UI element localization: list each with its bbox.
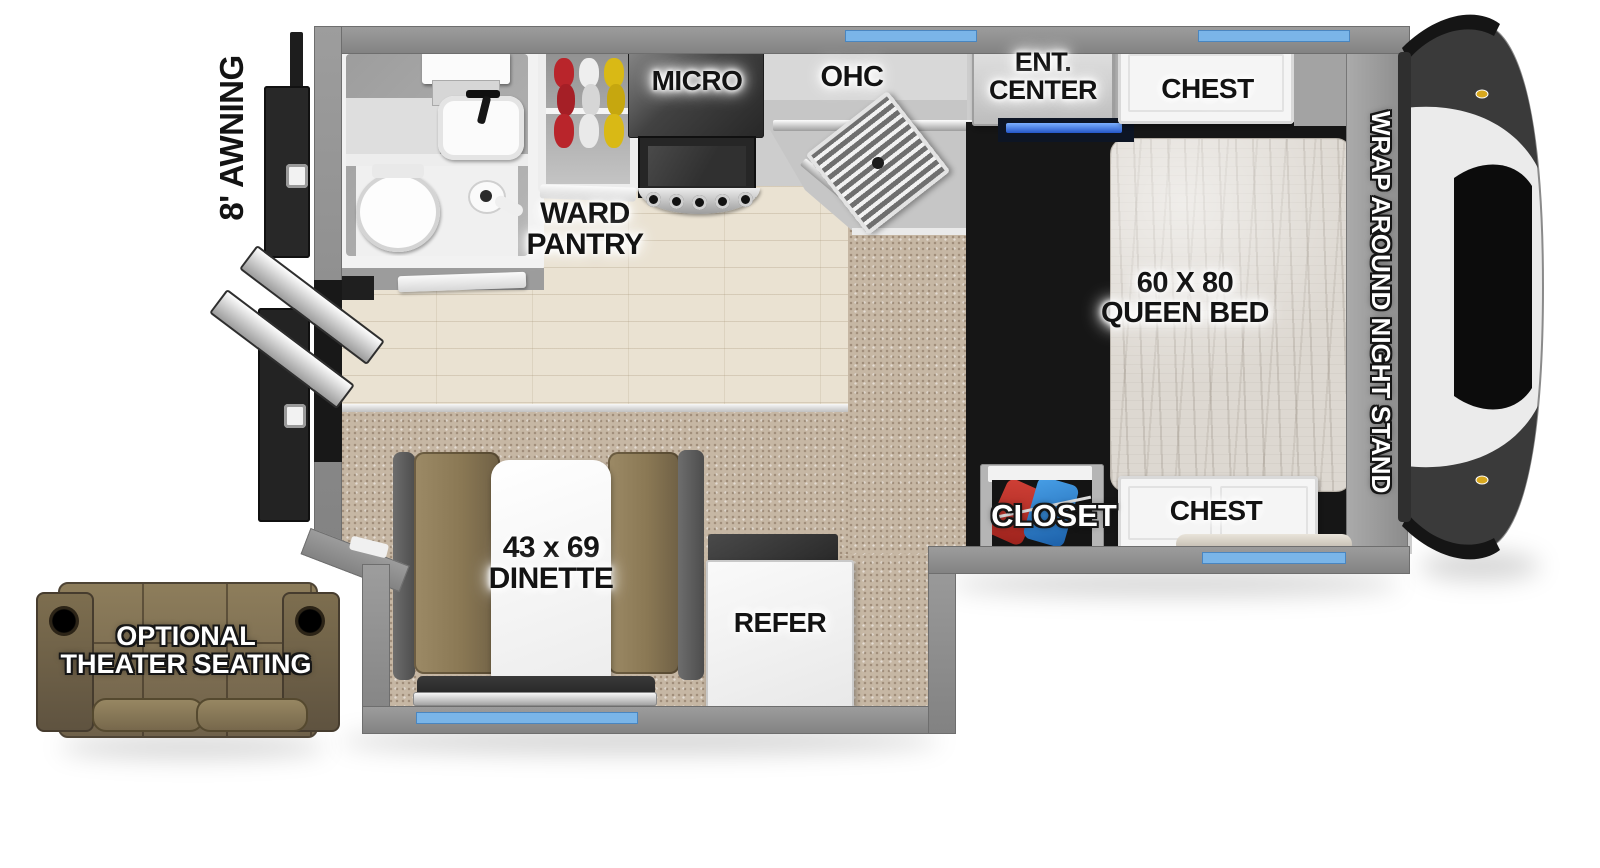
marker-light-icon [1476, 476, 1488, 484]
sink-drain-icon [870, 155, 887, 172]
shadow [950, 572, 1400, 596]
night-stand-label: WRAP AROUND NIGHT STAND [1362, 62, 1394, 542]
ward-pantry [538, 38, 638, 192]
chest-top-label: CHEST [1130, 74, 1285, 103]
faucet-spout-icon [477, 95, 492, 124]
dinette-label: 43 x 69 DINETTE [452, 532, 650, 594]
dinette-armrest-right [678, 450, 704, 680]
theater-seating-label: OPTIONAL THEATER SEATING [38, 622, 334, 679]
burner-icon [738, 192, 753, 207]
toilet [356, 172, 440, 252]
ward-pantry-label: WARD PANTRY [493, 198, 677, 260]
burner-icon [692, 195, 707, 210]
hanger-red-icon [554, 58, 574, 162]
window-bottom-bedroom [1202, 552, 1346, 564]
front-cap [1396, 6, 1548, 568]
awning-label: 8' AWNING [215, 13, 259, 263]
night-stand-return [1294, 48, 1348, 126]
floorplan-canvas: 8' AWNING MICRO OHC ENT. CENTER CHEST WA… [0, 0, 1600, 868]
ohc-label: OHC [792, 62, 912, 92]
toilet-tank [372, 164, 424, 178]
vanity-ledge [346, 98, 440, 156]
refer-label: REFER [706, 608, 854, 637]
dinette-step-edge [413, 692, 657, 706]
ward-pantry-interior [546, 46, 630, 184]
queen-bed-label: 60 X 80 QUEEN BED [1083, 268, 1287, 328]
carpet-bed-step [848, 222, 968, 558]
shower-head-hole [480, 190, 492, 202]
marker-light-icon [1476, 90, 1488, 98]
window-top-galley [845, 30, 977, 42]
ent-center-label: ENT. CENTER [968, 48, 1118, 104]
led-strip [1006, 123, 1122, 133]
window-top-bedroom [1198, 30, 1350, 42]
wall-bump-right [928, 546, 956, 734]
burner-icon [715, 194, 730, 209]
hanger-yellow-icon [604, 58, 624, 162]
sofa-seat-cushion [92, 698, 204, 732]
window-dinette [416, 712, 638, 724]
latch-icon [286, 164, 308, 188]
bathroom-sink [438, 96, 524, 160]
hanger-white-icon [579, 58, 599, 162]
entry-steps [190, 268, 400, 438]
sofa-seat-cushion [196, 698, 308, 732]
chest-bottom-label: CHEST [1136, 496, 1296, 525]
exterior-compartment-door [264, 86, 310, 258]
micro-label: MICRO [630, 66, 764, 95]
closet-label: CLOSET [972, 500, 1136, 533]
